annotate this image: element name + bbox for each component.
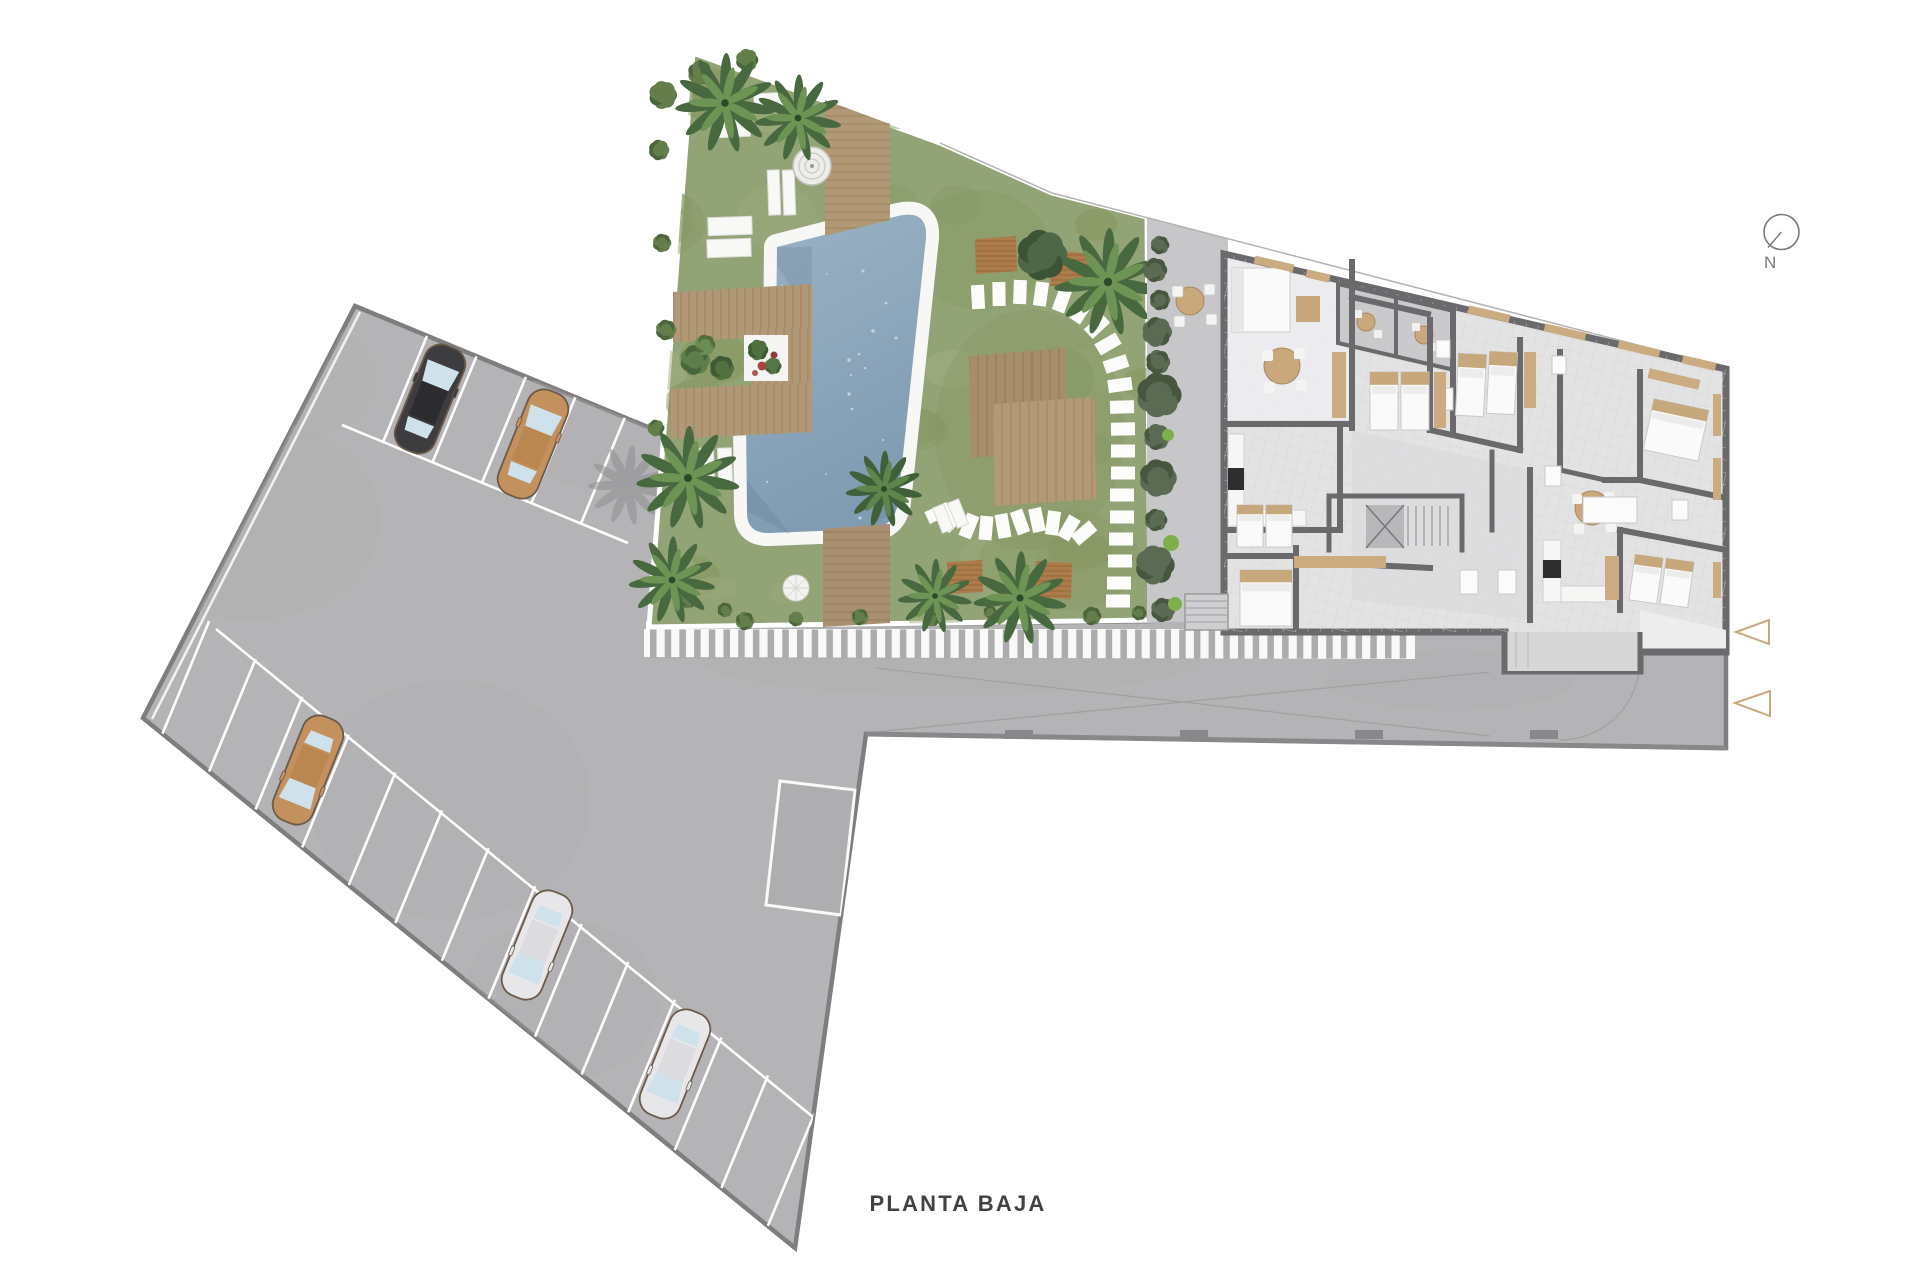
svg-text:N: N bbox=[1764, 253, 1776, 272]
svg-text:PLANTA BAJA: PLANTA BAJA bbox=[870, 1191, 1047, 1216]
